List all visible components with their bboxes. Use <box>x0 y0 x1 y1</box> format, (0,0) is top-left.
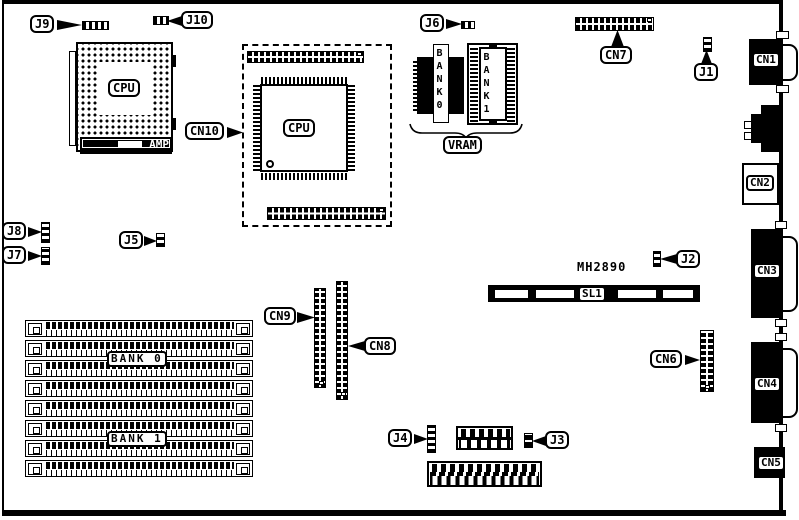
connector-cn1-label: CN1 <box>752 52 780 68</box>
vram-bank1-contacts-right <box>507 46 515 122</box>
jumper-j1-connector <box>703 37 712 52</box>
vram-bank1-notch-top <box>489 44 497 48</box>
cpu-socket-label: CPU <box>108 79 140 97</box>
qfp-pin1-dot <box>266 160 274 168</box>
j2-pointer <box>660 254 677 264</box>
connector-cn6-label: CN6 <box>650 350 682 368</box>
jumper-j3-label: J3 <box>545 431 569 449</box>
jumper-j9-label: J9 <box>30 15 54 33</box>
connector-cn6 <box>700 330 714 392</box>
connector-cn9 <box>314 288 326 388</box>
cpu-region-top-header <box>247 51 364 63</box>
cn9-pin1-pip <box>319 381 324 385</box>
j1-pointer <box>701 50 712 64</box>
connector-cn8-label: CN8 <box>364 337 396 355</box>
cn7-pin1-pip <box>647 18 652 22</box>
jumper-j7-connector <box>41 247 50 265</box>
top-header-pin1-pip <box>357 52 362 56</box>
vram-bank1-chip: BANK1 <box>479 47 507 121</box>
amp-chip-label: AMP <box>149 138 169 151</box>
j4-pointer <box>414 434 428 444</box>
connector-cn2-label: CN2 <box>746 175 774 191</box>
j8-pointer <box>28 227 42 237</box>
simm-bank0-label: BANK 0 <box>107 351 167 367</box>
j10-pointer <box>167 16 182 26</box>
cn4-tab-top <box>775 333 787 341</box>
sl1-segment-2 <box>536 290 574 298</box>
qfp-leads-right <box>348 85 355 171</box>
cpu-socket-tab-bottom <box>171 118 176 130</box>
power-small-slots <box>459 440 510 448</box>
jumper-j2-label: J2 <box>676 250 700 268</box>
mh2890-text: MH2890 <box>577 260 626 274</box>
cn1-tab-bottom <box>776 85 789 93</box>
cn8-pin1-pip <box>341 392 346 396</box>
jack-port-1 <box>744 121 752 129</box>
jumper-j6-connector <box>461 21 475 29</box>
cn8-pointer <box>348 341 365 351</box>
jumper-j10-connector <box>153 16 169 25</box>
cn6-pointer <box>685 355 700 365</box>
vram-label: VRAM <box>443 136 482 154</box>
jumper-j8-connector <box>41 222 50 243</box>
cpu-region-bottom-header <box>267 207 386 220</box>
jumper-j2-connector <box>653 251 661 267</box>
simm-bank1-label: BANK 1 <box>107 431 167 447</box>
simm-slot-1 <box>25 320 253 337</box>
jumper-j10-label: J10 <box>181 11 213 29</box>
amp-chip-window <box>118 141 142 147</box>
qfp-leads-left <box>253 85 260 171</box>
power-small-pins <box>459 429 510 437</box>
jumper-j6-label: J6 <box>420 14 444 32</box>
cn4-tab-bottom <box>775 424 787 432</box>
bottom-header-pin1-pip <box>379 208 384 212</box>
audio-jack-body <box>751 114 783 143</box>
vram-bank1-text: BANK1 <box>481 52 505 117</box>
cn10-pointer <box>227 127 243 138</box>
jack-port-2 <box>744 132 752 140</box>
connector-cn5-label: CN5 <box>757 455 785 471</box>
connector-cn8 <box>336 281 348 400</box>
connector-cn3-label: CN3 <box>753 263 781 279</box>
jumper-j8-label: J8 <box>2 222 26 240</box>
qfp-leads-top <box>261 77 347 84</box>
jumper-j4-label: J4 <box>388 429 412 447</box>
cn3-dsub-shell <box>781 236 798 312</box>
simm-slot-4 <box>25 380 253 397</box>
board-edge-top <box>3 0 783 4</box>
component-left-of-cpu <box>69 51 76 146</box>
power-large-slots <box>430 476 539 485</box>
j9-pointer <box>57 20 82 30</box>
audio-jack-bottom <box>761 142 783 152</box>
jumper-j7-label: J7 <box>2 246 26 264</box>
j7-pointer <box>28 251 42 261</box>
vram-bank1-contacts-left <box>470 46 478 122</box>
board-edge-bottom <box>2 510 786 516</box>
amp-chip: AMP <box>80 137 172 154</box>
sl1-segment-3 <box>618 290 656 298</box>
connector-cn9-label: CN9 <box>264 307 296 325</box>
jumper-j5-connector <box>156 233 165 247</box>
connector-cn7-label: CN7 <box>600 46 632 64</box>
cn1-dsub-shell <box>781 44 798 81</box>
jumper-j5-label: J5 <box>119 231 143 249</box>
cn3-tab-bottom <box>775 319 787 327</box>
power-connector-large <box>427 461 542 487</box>
j6-pointer <box>446 19 462 29</box>
cn3-tab-top <box>775 221 787 229</box>
simm-slot-8 <box>25 460 253 477</box>
connector-cn10-label: CN10 <box>185 122 224 140</box>
cpu-qfp-label: CPU <box>283 119 315 137</box>
simm-slot-5 <box>25 400 253 417</box>
connector-cn4-label: CN4 <box>753 376 781 392</box>
cpu-socket-tab-top <box>171 55 176 67</box>
motherboard-diagram: J9 J10 CPU AMP CPU CN10 J6 BANK0 BANK <box>0 0 799 520</box>
connector-cn7 <box>575 17 654 31</box>
vram-bank0-strip: BANK0 <box>433 44 449 123</box>
cn4-dsub-shell <box>781 348 798 418</box>
vram-bank0-text: BANK0 <box>434 48 448 113</box>
jumper-j1-label: J1 <box>694 63 718 81</box>
sl1-segment-4 <box>663 290 693 298</box>
cn9-pointer <box>297 312 315 323</box>
jumper-j3-connector <box>524 433 533 448</box>
jumper-j9-connector <box>82 21 109 30</box>
cn7-pointer <box>611 30 624 47</box>
cn1-tab-top <box>776 31 789 39</box>
power-large-pins <box>430 464 539 472</box>
cn6-pin1-pip <box>705 385 710 389</box>
power-connector-small <box>456 426 513 450</box>
sl1-segment-1 <box>495 290 528 298</box>
slot-sl1-label: SL1 <box>578 286 606 302</box>
j3-pointer <box>532 436 546 446</box>
jumper-j4-connector <box>427 425 436 453</box>
qfp-leads-bottom <box>261 173 347 180</box>
